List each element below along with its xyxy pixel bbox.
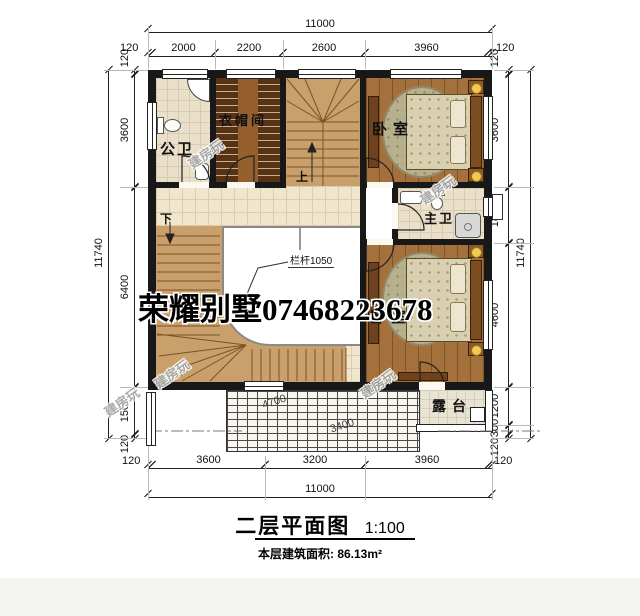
wall-bedrooms-hall <box>360 70 366 390</box>
extension-line <box>365 40 366 69</box>
door-opening-bedroom-top <box>367 182 393 188</box>
nightstand <box>468 244 484 258</box>
extension-line <box>265 456 266 500</box>
terrace-column <box>470 407 485 422</box>
toilet-bowl <box>164 119 181 132</box>
drawing-scale: 1:100 <box>365 520 405 537</box>
door-opening-cloakroom <box>227 182 255 188</box>
extension-line <box>494 70 534 71</box>
dim-top-3960: 3960 <box>365 56 488 57</box>
extension-line <box>494 387 534 388</box>
roof-below <box>226 390 420 452</box>
window-top-cloak <box>226 69 276 79</box>
floor-plan-page: { "title": { "main": "二层平面图", "scale": "… <box>0 0 640 616</box>
extension-line <box>215 40 216 69</box>
window-bottom-hall <box>244 381 284 391</box>
extension-line <box>494 243 534 244</box>
door-opening-bedroom-bottom <box>367 239 393 245</box>
pillow <box>450 302 466 332</box>
extension-line <box>120 187 150 188</box>
room-label-cloakroom: 衣帽间 <box>219 110 267 129</box>
dim-left-3600: 3600 <box>119 108 133 152</box>
shower-master <box>455 213 481 238</box>
dim-top-2000: 2000 <box>152 56 215 57</box>
drawing-title: 二层平面图 <box>235 515 350 538</box>
lamp-icon <box>471 345 482 356</box>
window-left-bath <box>147 102 157 150</box>
extension-line <box>494 438 534 439</box>
headboard <box>470 96 482 168</box>
watermark-main: 荣耀别墅07468223678 <box>138 284 433 329</box>
dim-bottom-3600: 3600 <box>152 468 265 469</box>
room-label-bedroom-top: 卧室 <box>372 118 414 139</box>
dim-left-b120: 120 <box>119 422 133 466</box>
stair-up-label: 上 <box>296 168 308 185</box>
window-sill-master-bath <box>492 194 503 220</box>
window-lower-left <box>146 392 156 446</box>
nightstand <box>468 342 484 356</box>
lamp-icon <box>471 83 482 94</box>
dim-top-2200: 2200 <box>215 56 283 57</box>
dim-right-total-line <box>530 70 531 438</box>
extension-line <box>148 26 149 69</box>
window-top-bedroom <box>390 69 462 79</box>
wall-bath-cloak <box>210 70 216 188</box>
dim-top-total: 11000 <box>148 32 492 33</box>
dim-left-6400-line <box>134 187 135 387</box>
wardrobe-right <box>258 78 280 182</box>
dim-left-6400: 6400 <box>119 265 133 309</box>
dim-left-total-line <box>108 70 109 438</box>
extension-line <box>283 40 284 69</box>
window-top-stair <box>298 69 356 79</box>
toilet-tank <box>157 117 164 134</box>
railing-note: 栏杆1050 <box>288 252 334 268</box>
nightstand <box>468 168 484 182</box>
lamp-icon <box>471 247 482 258</box>
terrace-parapet-bottom <box>416 424 493 432</box>
pillow <box>450 100 466 128</box>
window-right-bedroom-bottom <box>483 280 493 350</box>
window-top-bath <box>162 69 208 79</box>
window-right-master-bath <box>483 197 493 217</box>
nightstand <box>468 80 484 94</box>
window-right-bedroom-top <box>483 96 493 160</box>
terrace-parapet-right <box>485 390 493 432</box>
extension-line <box>494 187 534 188</box>
lamp-icon <box>471 171 482 182</box>
room-label-terrace: 露台 <box>432 396 472 416</box>
stair-down-label: 下 <box>160 210 172 227</box>
dim-left-t120: 120 <box>119 36 133 80</box>
door-opening-public-bath <box>179 182 209 188</box>
background-band <box>0 578 640 616</box>
dim-left-3600-line <box>134 74 135 187</box>
door-opening-terrace <box>419 382 445 390</box>
dim-top-2600: 2600 <box>283 56 365 57</box>
tv-cabinet <box>398 372 448 381</box>
dim-bottom-3960: 3960 <box>365 468 489 469</box>
title-block: 二层平面图 1:100 <box>0 510 640 540</box>
pillow <box>450 136 466 164</box>
floor-area-label: 本层建筑面积: 86.13m² <box>0 545 640 562</box>
extension-line <box>494 425 534 426</box>
dim-right-total: 11740 <box>515 231 529 275</box>
headboard <box>470 260 482 340</box>
extension-line <box>104 438 150 439</box>
pillow <box>450 264 466 294</box>
wardrobe-left <box>216 78 238 182</box>
dim-bottom-total: 11000 <box>148 497 492 498</box>
extension-line <box>104 70 150 71</box>
door-opening-master-bath <box>392 203 398 229</box>
wall-cloak-stair <box>280 70 286 188</box>
title-underline <box>255 538 415 540</box>
dim-right-4600-line <box>508 243 509 387</box>
extension-line <box>492 26 493 69</box>
wall-hall-north <box>148 182 286 188</box>
dim-bottom-3200: 3200 <box>265 468 365 469</box>
extension-line <box>365 456 366 500</box>
dim-right-3600-line <box>508 74 509 187</box>
drain-icon <box>464 223 472 231</box>
extension-line <box>492 436 493 500</box>
room-label-master-bath: 主卫 <box>424 208 454 227</box>
dim-left-total: 11740 <box>93 231 107 275</box>
dim-right-1800-line <box>508 187 509 243</box>
dim-right-1200-line <box>508 387 509 425</box>
